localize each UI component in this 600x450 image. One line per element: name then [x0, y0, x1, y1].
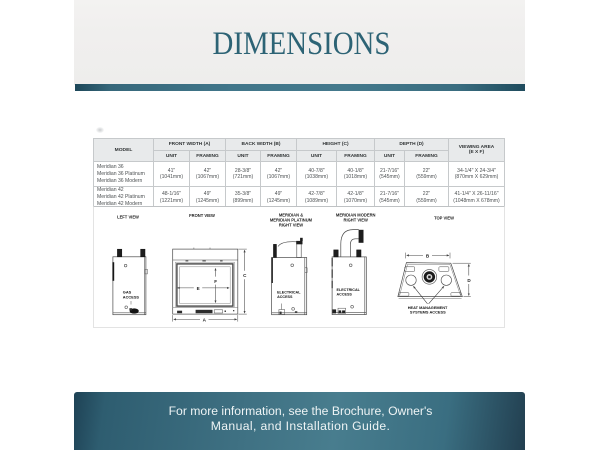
svg-text:A: A [203, 318, 207, 323]
svg-text:RIGHT VIEW: RIGHT VIEW [344, 218, 368, 223]
svg-text:ACCESS: ACCESS [277, 295, 293, 299]
svg-text:B: B [426, 253, 430, 258]
svg-text:ELECTRICAL: ELECTRICAL [337, 288, 361, 292]
svg-text:ACCESS: ACCESS [123, 294, 140, 299]
svg-text:FRONT VIEW: FRONT VIEW [189, 213, 215, 218]
svg-text:E: E [197, 286, 200, 291]
svg-text:RIGHT VIEW: RIGHT VIEW [279, 223, 303, 228]
svg-text:SYSTEMS ACCESS: SYSTEMS ACCESS [410, 309, 446, 314]
svg-text:F: F [214, 279, 217, 284]
svg-text:TOP VIEW: TOP VIEW [434, 216, 454, 221]
svg-text:LEFT VIEW: LEFT VIEW [117, 215, 139, 220]
svg-text:ACCESS: ACCESS [337, 293, 353, 297]
